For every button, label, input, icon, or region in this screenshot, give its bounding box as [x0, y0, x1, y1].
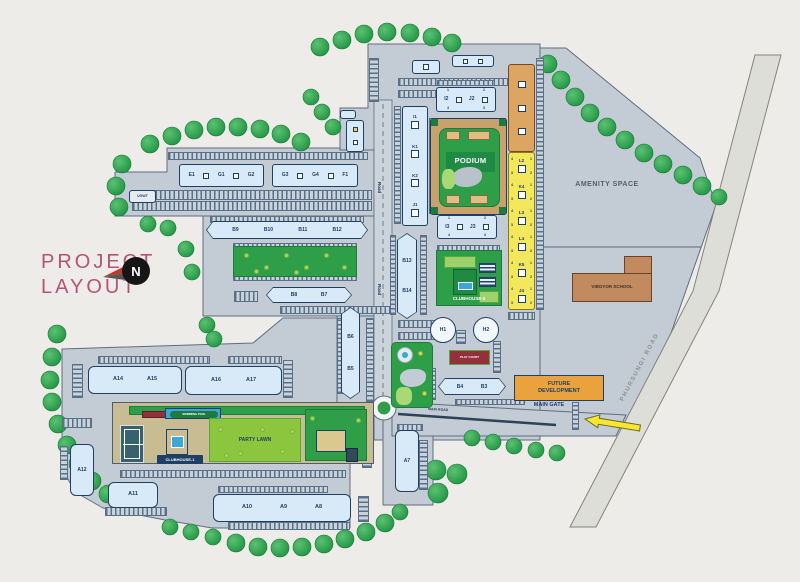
tower-label: B8 — [291, 292, 297, 298]
tree-icon — [251, 120, 269, 138]
unit-l4: 41 32 L4 — [509, 231, 534, 257]
unit-digit: 1 — [530, 288, 532, 292]
clubhouse1-east-garden — [305, 409, 367, 461]
parking-strip — [572, 402, 579, 430]
tree-icon — [464, 430, 480, 446]
tree-icon — [443, 34, 461, 52]
lift-core — [463, 59, 468, 64]
tree-icon — [292, 133, 310, 151]
unit-digit: 1 — [530, 158, 532, 162]
unit-digit: 4 — [511, 158, 513, 162]
tower-label: B13 — [402, 258, 411, 264]
parking-strip — [234, 291, 258, 302]
playground-pool — [402, 352, 408, 358]
tower-label: F1 — [342, 173, 348, 178]
unit-digit: 3 — [484, 234, 486, 238]
play-court: PLAY COURT — [449, 350, 490, 365]
tower-label: B9 — [232, 227, 238, 233]
tower-label: A10 — [242, 505, 252, 511]
unit-l2: 41 32 L2 — [509, 153, 534, 179]
clubhouse2-pool — [458, 282, 473, 290]
future-development-label: FUTURE DEVELOPMENT — [529, 381, 589, 394]
clubhouse2-complex: CLUBHOUSE-2 — [436, 250, 502, 306]
parking-strip — [132, 190, 372, 200]
tower-label: L2 — [519, 159, 524, 164]
tree-icon — [711, 189, 727, 205]
tree-icon — [357, 523, 375, 541]
tower-label: I1 — [413, 115, 417, 120]
parking-strip — [228, 522, 350, 530]
tower-label: L4 — [519, 237, 524, 242]
unit-digit: 2 — [530, 250, 532, 254]
tree-icon — [141, 135, 159, 153]
tower-label: B4 — [457, 384, 463, 390]
unit-digit: 4 — [448, 234, 450, 238]
tree-icon — [178, 241, 194, 257]
tree-icon — [355, 25, 373, 43]
unit-digit: 2 — [483, 89, 485, 93]
window — [353, 140, 358, 145]
clubhouse2-label: CLUBHOUSE-2 — [437, 295, 501, 303]
tower-label: J1 — [412, 203, 417, 208]
tree-icon — [485, 434, 501, 450]
tower-label: B6 — [347, 334, 353, 340]
tree-icon — [293, 538, 311, 556]
tower-label: I2 — [444, 97, 448, 102]
tower-label: A12 — [77, 468, 86, 473]
unit-core — [456, 97, 462, 103]
tower-label: A9 — [280, 505, 287, 511]
unit-k2: K2 — [403, 166, 427, 195]
unit-l3: 41 32 L3 — [509, 205, 534, 231]
lift-core — [203, 173, 209, 179]
lift-core — [328, 173, 334, 179]
tree-icon — [227, 534, 245, 552]
tree-icon — [205, 529, 221, 545]
clubhouse2-deck — [479, 277, 496, 287]
playground-lawn — [396, 387, 412, 405]
tower-b6-b5: B6 B5 — [341, 307, 360, 399]
unit-core — [411, 150, 419, 158]
unit-digit: 4 — [511, 236, 513, 240]
tree-icon — [428, 483, 448, 503]
school-building: VIBGYOR SCHOOL — [572, 273, 652, 302]
compass-icon: N — [122, 257, 150, 285]
tree-icon — [598, 118, 616, 136]
gym-block — [142, 411, 166, 418]
tower-label: B14 — [402, 288, 411, 294]
parking-strip — [168, 152, 368, 160]
tower-label: K4 — [519, 185, 525, 190]
parking-strip — [394, 106, 401, 224]
tower-label: A14 — [113, 377, 123, 383]
podium-path — [452, 167, 482, 187]
tree-icon — [48, 325, 66, 343]
tree-icon — [162, 519, 178, 535]
tree-icon — [581, 104, 599, 122]
unit-digit: 3 — [511, 224, 513, 228]
unit-i1: I1 — [403, 107, 427, 136]
unit-digit: 1 — [530, 210, 532, 214]
playground — [391, 342, 433, 408]
utility-block — [346, 448, 358, 462]
top-block-a — [412, 60, 440, 74]
unit-k4: 41 32 K4 — [509, 179, 534, 205]
tower-label: L3 — [519, 211, 524, 216]
tree-icon — [107, 177, 125, 195]
unit-digit: 3 — [511, 198, 513, 202]
tower-a12: A12 — [70, 444, 94, 496]
tree-icon — [315, 535, 333, 553]
playground-path — [400, 369, 426, 387]
lift-core — [423, 64, 429, 70]
tree-icon — [336, 530, 354, 548]
unit-digit: 3 — [483, 107, 485, 111]
tree-icon — [206, 331, 222, 347]
unit-core — [483, 224, 489, 230]
tower-label: K2 — [412, 174, 418, 179]
unit-core — [518, 191, 526, 199]
unit-digit: 4 — [511, 210, 513, 214]
parking-strip — [280, 306, 390, 314]
unit-digit: 2 — [530, 224, 532, 228]
tower-label: K5 — [519, 263, 525, 268]
parking-strip — [72, 364, 83, 398]
amenity-space-label: AMENITY SPACE — [552, 178, 662, 190]
tower-label: A15 — [147, 377, 157, 383]
unit-digit: 2 — [530, 198, 532, 202]
tree-icon — [160, 220, 176, 236]
tower-b9-b12: B9 B10 B11 B12 — [206, 221, 368, 239]
tower-label: J3 — [470, 225, 476, 230]
unit-digit: 1 — [530, 184, 532, 188]
parking-strip — [456, 330, 466, 344]
main-gate-label: MAIN GATE — [525, 403, 573, 409]
tree-icon — [552, 71, 570, 89]
clubhouse2-lawn — [444, 256, 476, 268]
party-lawn: PARTY LAWN — [209, 418, 301, 462]
tree-icon — [249, 538, 267, 556]
unit-core — [518, 81, 526, 88]
unit-core — [518, 269, 526, 277]
party-lawn-label: PARTY LAWN — [239, 438, 272, 443]
tower-h2: H2 — [473, 317, 499, 343]
parking-strip — [62, 418, 92, 428]
unit-digit: 4 — [511, 262, 513, 266]
parking-strip — [132, 201, 372, 211]
tower-label: A7 — [404, 459, 410, 464]
parking-strip — [369, 58, 379, 102]
clubhouse2-building — [453, 269, 477, 295]
unit-core — [518, 295, 526, 303]
podium-structure — [470, 195, 488, 204]
unit-core — [411, 121, 419, 129]
tower-a16-a17: A16 A17 — [185, 366, 282, 395]
tower-b8-b7: B8 B7 — [266, 287, 352, 303]
unit-digit: 3 — [511, 276, 513, 280]
tower-g3-g4-f1: G3 G4 F1 — [272, 164, 358, 187]
tower-a10-a9-a8: A10 A9 A8 — [213, 494, 351, 522]
tree-icon — [311, 38, 329, 56]
tree-icon — [163, 127, 181, 145]
tree-icon — [272, 125, 290, 143]
tree-icon — [376, 514, 394, 532]
unit-digit: 3 — [511, 302, 513, 306]
podium-label: PODIUM — [440, 153, 501, 169]
unit-core — [457, 224, 463, 230]
tower-e1-g1-g2: E1 G1 G2 — [179, 164, 264, 187]
lift-core — [297, 173, 303, 179]
tree-icon — [654, 155, 672, 173]
tree-icon — [549, 445, 565, 461]
tower-label: B10 — [264, 227, 273, 233]
tower-label: A17 — [246, 378, 256, 384]
tree-icon — [447, 464, 467, 484]
unit-k1: K1 — [403, 137, 427, 166]
tower-l-k-strip: 41 32 L2 41 32 K4 41 32 L3 41 32 L4 41 3… — [508, 152, 535, 310]
tower-h1: H1 — [430, 317, 456, 343]
tennis-court — [120, 425, 144, 463]
playground-pond — [397, 347, 413, 363]
play-court-label: PLAY COURT — [460, 356, 479, 359]
unit-core — [518, 243, 526, 251]
tree-icon — [43, 348, 61, 366]
tower-label: G3 — [282, 173, 289, 178]
tower-label: B3 — [481, 384, 487, 390]
row-houses-north — [508, 64, 535, 152]
tower-a11: A11 — [108, 482, 158, 508]
road-label-1: Road — [377, 182, 382, 193]
tower-label: B11 — [298, 227, 307, 233]
window — [353, 127, 358, 132]
school-label: VIBGYOR SCHOOL — [591, 285, 632, 290]
tree-icon — [271, 539, 289, 557]
tower-label: G4 — [312, 173, 319, 178]
tree-icon — [506, 438, 522, 454]
tree-icon — [110, 198, 128, 216]
clubhouse2-deck — [479, 263, 496, 273]
amenity-building — [316, 430, 346, 452]
parking-strip — [420, 235, 427, 315]
parking-strip — [218, 486, 328, 493]
tree-icon — [113, 155, 131, 173]
tower-label: H2 — [483, 328, 489, 333]
podium-block: PODIUM — [430, 118, 507, 215]
tree-icon — [423, 28, 441, 46]
tree-icon — [185, 121, 203, 139]
tree-icon — [207, 118, 225, 136]
tower-label: B5 — [347, 366, 353, 372]
tower-label: G1 — [218, 173, 225, 178]
parking-strip — [493, 341, 501, 373]
tower-label: I3 — [445, 225, 449, 230]
tree-icon — [333, 31, 351, 49]
unit-core — [518, 165, 526, 173]
parking-strip — [390, 235, 396, 315]
tree-icon — [229, 118, 247, 136]
tree-icon — [199, 317, 215, 333]
clubhouse1-complex: SWIMMING POOL CLUBHOUSE-1 PARTY LAWN — [112, 402, 374, 464]
tower-label: E1 — [189, 173, 195, 178]
parking-strip — [120, 470, 346, 478]
parking-strip — [228, 356, 282, 364]
swimming-pool-label: SWIMMING POOL — [170, 411, 218, 418]
tower-label: J2 — [469, 97, 475, 102]
tree-icon — [635, 144, 653, 162]
podium-green: PODIUM — [439, 128, 500, 207]
parking-strip — [536, 58, 544, 310]
podium-corner — [431, 119, 438, 126]
tower-label: A11 — [128, 492, 138, 498]
tree-icon — [43, 393, 61, 411]
tower-label: B12 — [333, 227, 342, 233]
parking-strip — [60, 446, 68, 480]
land-amenity-wedge — [540, 48, 716, 428]
tree-icon — [566, 88, 584, 106]
tree-icon — [378, 23, 396, 41]
top-block-b — [452, 55, 494, 67]
parking-strip — [105, 507, 167, 516]
tower-i1-k1-k2-j1: I1 K1 K2 J1 — [402, 106, 428, 226]
tree-icon — [41, 371, 59, 389]
lawn-strip — [233, 246, 357, 277]
podium-structure — [468, 131, 490, 140]
unit-core — [518, 105, 526, 112]
road-label-2: Road — [377, 284, 382, 295]
clubhouse1-label: CLUBHOUSE-1 — [157, 455, 203, 464]
parking-strip — [366, 318, 374, 402]
unit-digit: 3 — [511, 172, 513, 176]
tower-label: A16 — [211, 378, 221, 384]
clubhouse1-building — [166, 429, 188, 455]
podium-structure — [446, 195, 460, 204]
parking-strip — [508, 312, 535, 320]
unit-core — [518, 128, 526, 135]
tree-icon — [184, 264, 200, 280]
podium-structure — [446, 131, 460, 140]
tree-icon — [183, 524, 199, 540]
tree-icon — [303, 89, 319, 105]
unit-digit: 1 — [448, 217, 450, 221]
parking-strip — [98, 356, 210, 364]
unit-digit: 3 — [511, 250, 513, 254]
unit-digit: 4 — [511, 184, 513, 188]
podium-corner — [499, 207, 506, 214]
unit-digit: 1 — [447, 89, 449, 93]
future-development: FUTURE DEVELOPMENT — [514, 375, 604, 401]
unit-core — [411, 179, 419, 187]
unit-digit: 4 — [511, 288, 513, 292]
tower-label: H1 — [440, 328, 446, 333]
tower-label: G2 — [248, 173, 255, 178]
tower-i3-j3: 1 2 4 3 I3 J3 — [437, 215, 497, 239]
ugwt-label: UGWT — [137, 195, 148, 199]
lift-core — [233, 173, 239, 179]
parking-strip — [358, 496, 369, 522]
parking-strip — [419, 440, 428, 490]
lift-core — [478, 59, 483, 64]
roundabout-green — [377, 401, 392, 416]
unit-digit: 2 — [530, 276, 532, 280]
unit-digit: 1 — [530, 262, 532, 266]
tower-label: B7 — [321, 292, 327, 298]
unit-digit: 2 — [484, 217, 486, 221]
unit-k5: 41 32 K5 — [509, 257, 534, 283]
tree-icon — [325, 119, 341, 135]
podium-lawn-patch — [442, 169, 455, 189]
clubhouse1-pool — [171, 436, 184, 448]
parking-strip — [283, 360, 293, 398]
tree-icon — [528, 442, 544, 458]
podium-corner — [431, 207, 438, 214]
unit-j4: 41 32 J4 — [509, 283, 534, 309]
small-block — [340, 110, 356, 119]
tower-label: J4 — [519, 289, 524, 294]
parking-strip — [437, 80, 495, 86]
project-layout-map: E1 G1 G2 G3 G4 F1 UGWT B9 B10 B11 B12 B8… — [0, 0, 800, 582]
unit-j1: J1 — [403, 196, 427, 225]
tree-icon — [693, 177, 711, 195]
unit-core — [482, 97, 488, 103]
tree-icon — [314, 104, 330, 120]
unit-core — [411, 209, 419, 217]
unit-digit: 1 — [530, 236, 532, 240]
tree-icon — [401, 24, 419, 42]
unit-digit: 4 — [447, 107, 449, 111]
tower-b4-b3: B4 B3 — [438, 378, 506, 395]
ugwt-box: UGWT — [129, 190, 156, 203]
tree-icon — [674, 166, 692, 184]
tree-icon — [426, 460, 446, 480]
tower-a7: A7 — [395, 430, 419, 492]
unit-digit: 2 — [530, 302, 532, 306]
unit-digit: 2 — [530, 172, 532, 176]
tower-label: K1 — [412, 145, 418, 150]
tower-label: A8 — [315, 505, 322, 511]
compass-n: N — [131, 264, 140, 279]
unit-core — [518, 217, 526, 225]
tree-icon — [392, 504, 408, 520]
tennis-net — [123, 444, 143, 445]
tower-b13-b14: B13 B14 — [397, 233, 417, 319]
small-tower — [346, 120, 364, 152]
tree-icon — [140, 216, 156, 232]
tower-i2-j2: 1 2 4 3 I2 J2 — [436, 87, 496, 112]
tree-icon — [616, 131, 634, 149]
podium-corner — [499, 119, 506, 126]
tower-a14-a15: A14 A15 — [88, 366, 182, 394]
